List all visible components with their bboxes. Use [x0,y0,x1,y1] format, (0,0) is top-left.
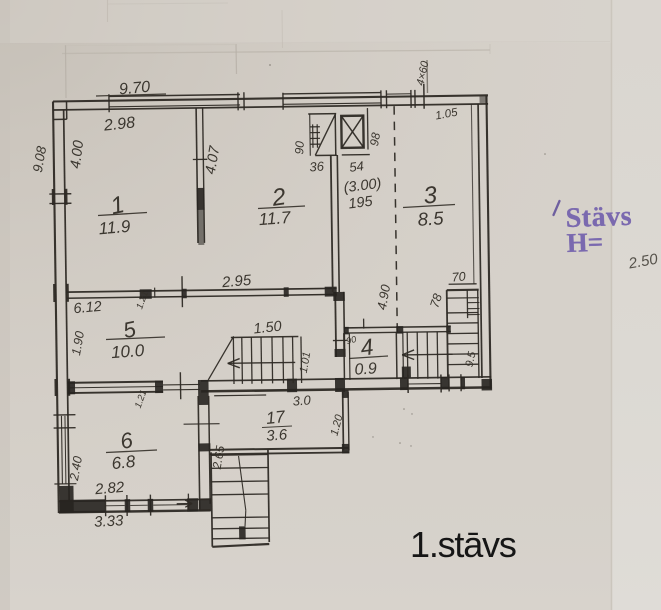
svg-text:2.95: 2.95 [220,272,252,292]
svg-text:36: 36 [309,158,325,174]
svg-text:H=: H= [566,227,603,258]
svg-text:6.12: 6.12 [73,299,103,317]
svg-text:3.6: 3.6 [266,426,289,444]
svg-text:70: 70 [451,269,466,284]
svg-text:17: 17 [265,407,286,428]
svg-text:3.0: 3.0 [292,392,312,408]
svg-text:54: 54 [348,158,364,175]
svg-text:1.stāvs: 1.stāvs [410,524,516,565]
svg-text:11.7: 11.7 [258,208,292,229]
svg-text:1.50: 1.50 [253,319,283,338]
svg-text:11.9: 11.9 [98,217,132,239]
svg-text:2.82: 2.82 [93,479,125,499]
svg-text:6.8: 6.8 [111,452,137,473]
svg-text:3.33: 3.33 [94,512,125,531]
svg-text:8.5: 8.5 [417,207,445,230]
svg-text:98: 98 [367,131,383,147]
svg-text:10.0: 10.0 [110,341,145,362]
svg-text:195: 195 [348,194,375,213]
svg-text:2.98: 2.98 [102,114,136,134]
svg-text:4.00: 4.00 [68,140,87,170]
svg-text:0.9: 0.9 [354,360,377,379]
svg-text:90: 90 [292,140,307,154]
